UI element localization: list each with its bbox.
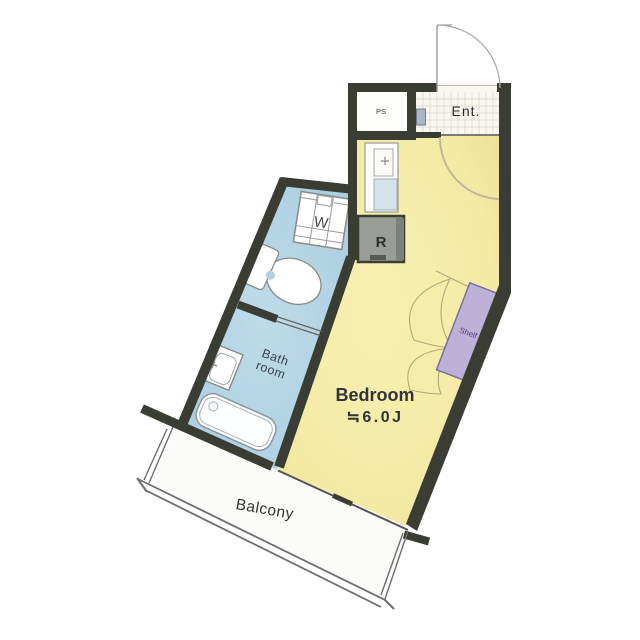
svg-text:Ent.: Ent. xyxy=(452,103,481,119)
svg-text:R: R xyxy=(376,234,387,251)
svg-text:PS: PS xyxy=(376,107,386,116)
svg-text:≒6.0J: ≒6.0J xyxy=(346,409,403,426)
svg-text:Bedroom: Bedroom xyxy=(335,385,414,405)
